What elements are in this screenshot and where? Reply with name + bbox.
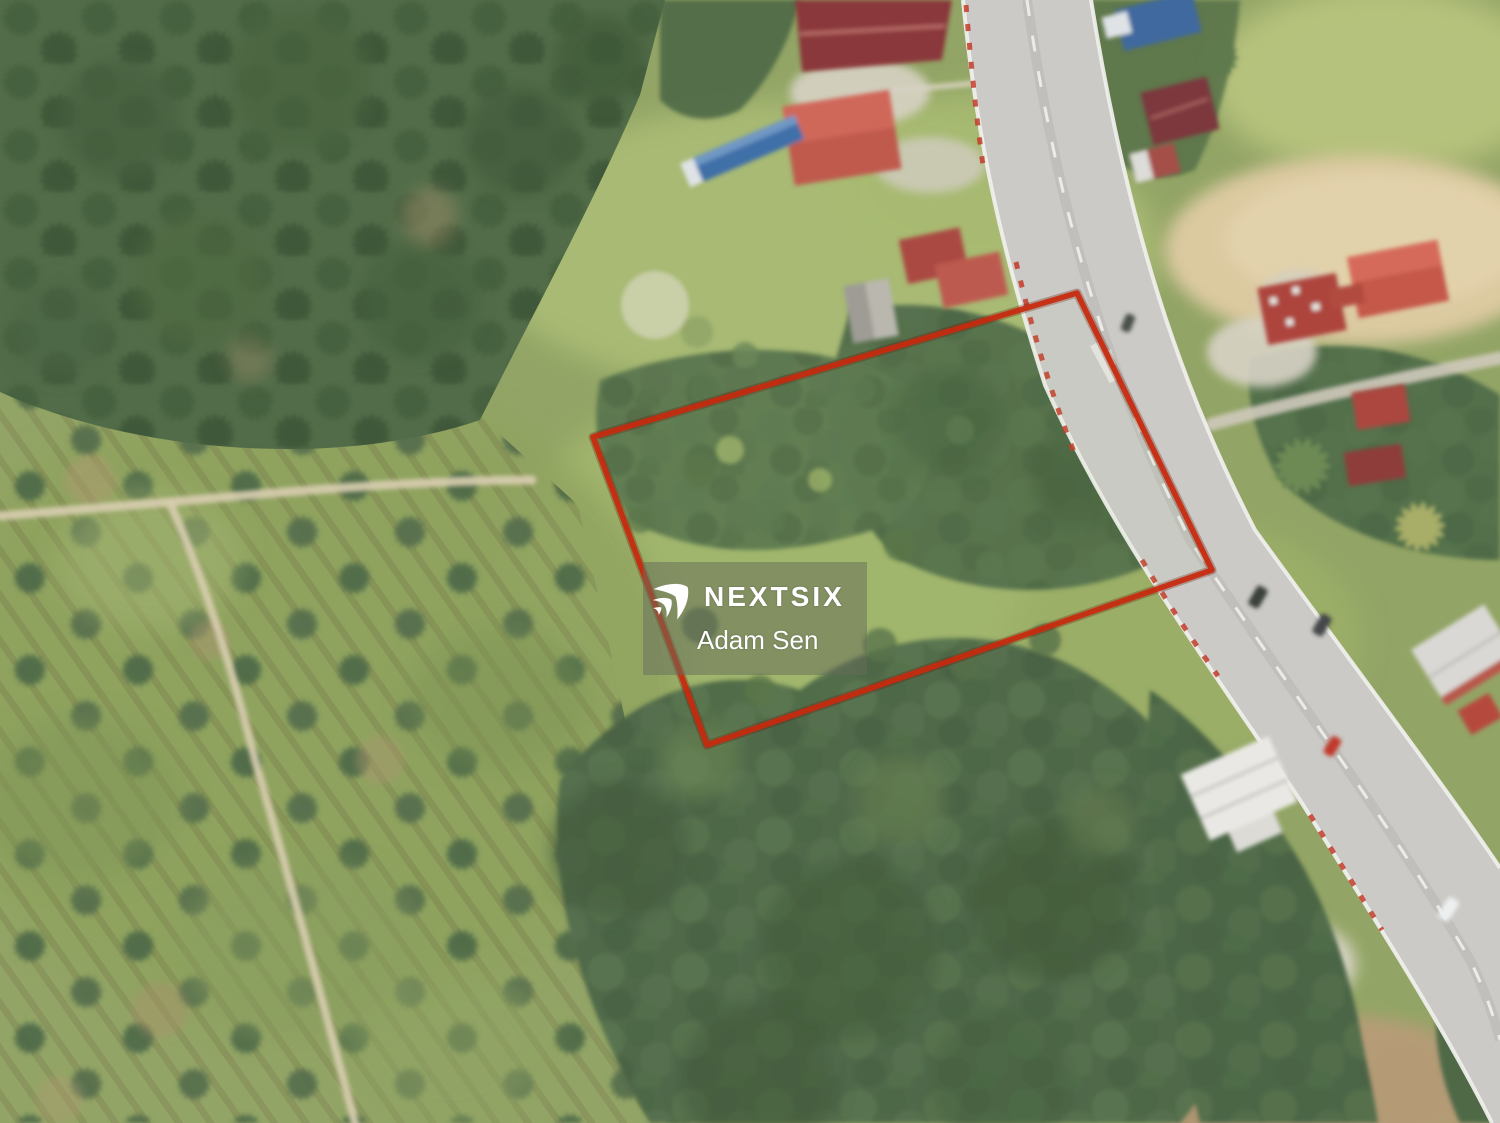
brand-name: NEXTSIX <box>704 581 845 613</box>
watermark-panel: NEXTSIX Adam Sen <box>643 562 867 675</box>
aerial-photo: NEXTSIX Adam Sen <box>0 0 1500 1123</box>
nextsix-swoosh-icon <box>651 571 697 623</box>
watermark-brand-row: NEXTSIX <box>651 571 857 623</box>
agent-name: Adam Sen <box>697 625 857 656</box>
